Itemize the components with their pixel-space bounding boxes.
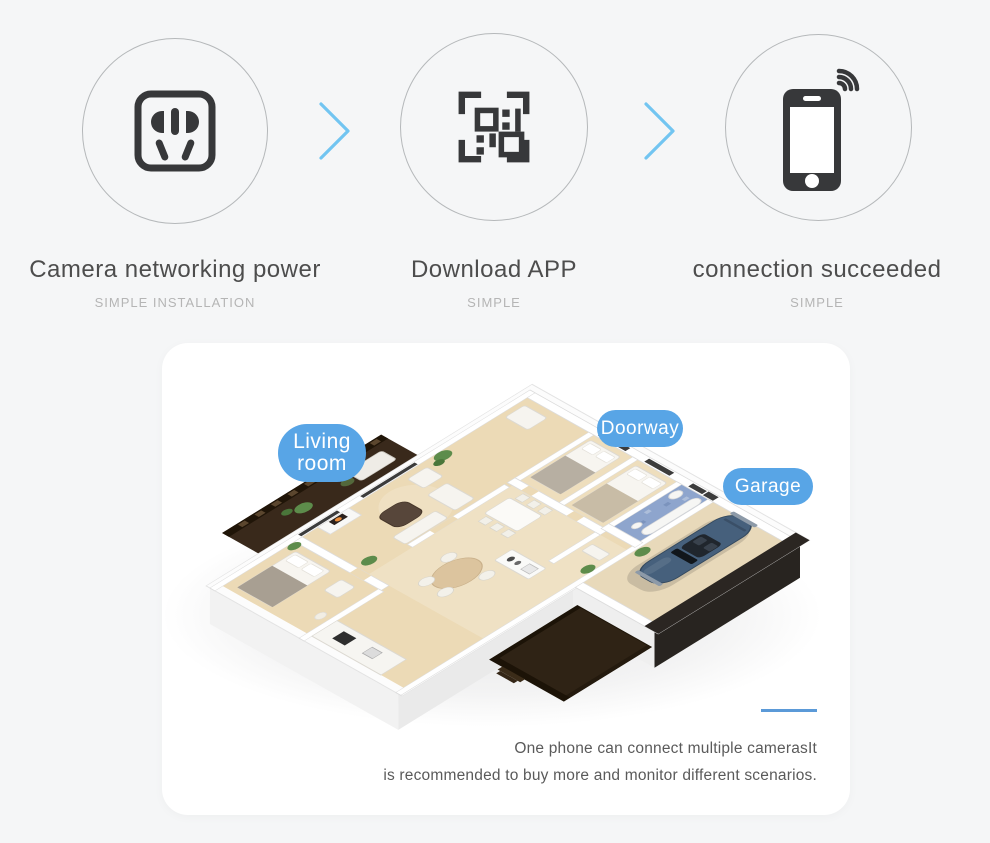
accent-line [761,709,817,712]
qr-scan-icon [448,81,540,173]
step-title-app: Download APP [319,256,669,284]
step-circle-app [400,33,588,221]
chevron-right-icon [318,101,352,161]
phone-wifi-icon [777,63,861,193]
floorplan-panel: Living room Doorway Garage One phone can… [162,343,850,815]
panel-caption: One phone can connect multiple camerasIt… [297,709,817,793]
power-socket-icon [133,89,217,173]
living-room-label-line1: Living [278,431,366,453]
wifi-signal-icon [839,71,857,89]
room-label-garage: Garage [723,468,813,505]
step-subtitle-power: SIMPLE INSTALLATION [0,295,350,310]
step-circle-power [82,38,268,224]
room-label-doorway: Doorway [597,410,683,447]
chevron-right-icon [643,101,677,161]
room-label-living-room: Living room [278,424,366,482]
caption-line1: One phone can connect multiple camerasIt [297,739,817,759]
caption-line2: is recommended to buy more and monitor d… [297,766,817,786]
step-subtitle-app: SIMPLE [319,295,669,310]
step-circle-phone [725,34,912,221]
step-title-connect: connection succeeded [642,256,990,284]
step-title-power: Camera networking power [0,256,350,284]
step-subtitle-connect: SIMPLE [642,295,990,310]
living-room-label-line2: room [278,453,366,475]
marketing-graphic: Camera networking power Download APP con… [0,0,990,843]
